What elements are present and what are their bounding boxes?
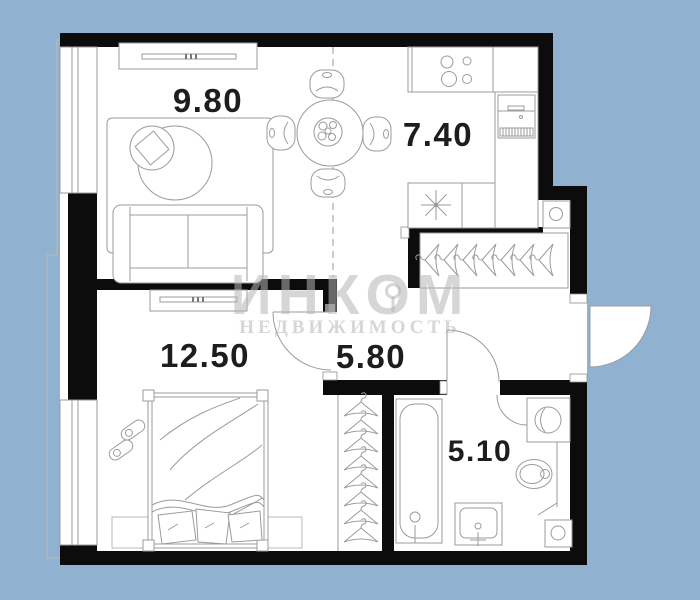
tv-stand [119, 43, 257, 69]
cushion [130, 126, 174, 170]
toilet [516, 460, 552, 489]
label-bedroom-area: 12.50 [160, 337, 250, 374]
washbasin [455, 503, 502, 546]
bed [143, 390, 268, 551]
ventilation-shaft [543, 201, 570, 228]
floor-plan-image: 9.80 7.40 12.50 5.80 5.10 ИНКОМ НЕДВИЖИМ… [0, 0, 700, 600]
label-bathroom-area: 5.10 [448, 435, 512, 468]
kitchen-sink [421, 190, 451, 220]
window-living [60, 47, 97, 193]
watermark-subtitle: НЕДВИЖИМОСТЬ [239, 317, 460, 338]
watermark: ИНКОМ НЕДВИЖИМОСТЬ [231, 263, 470, 338]
dining-table [297, 100, 363, 166]
window-bedroom [60, 400, 97, 545]
label-living-room-area: 9.80 [173, 82, 243, 119]
bathtub [396, 399, 442, 543]
label-kitchen-area: 7.40 [403, 116, 473, 153]
washing-machine [527, 398, 570, 442]
label-hallway-area: 5.80 [336, 338, 406, 375]
